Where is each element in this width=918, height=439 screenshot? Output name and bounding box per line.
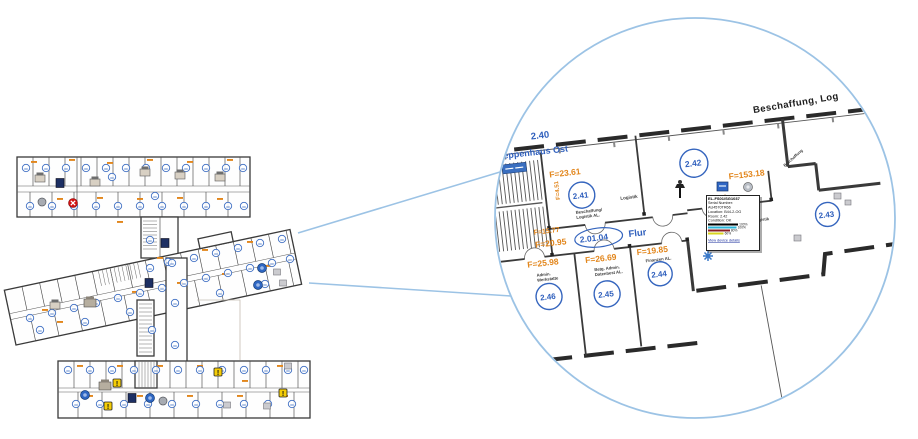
room-badge-icon[interactable] — [180, 279, 187, 286]
room-badge-icon[interactable] — [162, 164, 169, 171]
room-2.44-no[interactable]: 2.44 — [651, 269, 668, 280]
stairs-lower-left — [460, 267, 502, 342]
tooltip-status-bars: 100%100%80%60% — [708, 223, 760, 235]
room-badge-icon[interactable] — [146, 264, 153, 271]
room-badge-icon[interactable] — [22, 164, 29, 171]
gray-device-icon[interactable] — [744, 183, 753, 192]
room-badge-icon[interactable] — [72, 400, 79, 407]
navy-icon[interactable] — [145, 279, 153, 288]
room-badge-icon[interactable] — [222, 164, 229, 171]
stair-room-no: 2.40 — [530, 129, 550, 142]
area-label-mark — [227, 159, 233, 161]
area-label-mark — [42, 309, 48, 311]
room-badge-icon[interactable] — [286, 255, 293, 262]
corridor-name: Flur — [628, 227, 647, 240]
area-label-mark — [117, 221, 123, 223]
graybox-icon[interactable] — [285, 363, 292, 369]
printer-icon[interactable] — [35, 173, 45, 183]
device-tooltip: EL-FS01/SG1037 Serial Number: AU4570TR66… — [706, 195, 760, 251]
room-2.43-no[interactable]: 2.43 — [818, 210, 835, 221]
area-label-mark — [217, 198, 223, 200]
status-bar-row: 60% — [708, 232, 760, 235]
room-badge-icon[interactable] — [196, 366, 203, 373]
overview-bottom-wing — [58, 361, 310, 418]
area-label-mark — [202, 249, 208, 251]
room-badge-icon[interactable] — [81, 318, 88, 325]
svg-text:!: ! — [107, 404, 109, 411]
room-badge-icon[interactable] — [262, 366, 269, 373]
room-badge-icon[interactable] — [158, 202, 165, 209]
graybox-icon[interactable] — [224, 402, 231, 408]
partial-area-left: F=3.69 — [465, 261, 492, 273]
room-badge-icon[interactable] — [256, 239, 263, 246]
blueround-icon[interactable] — [81, 391, 90, 400]
area-label-mark — [57, 198, 63, 200]
room-badge-icon[interactable] — [300, 366, 307, 373]
room-badge-icon[interactable] — [216, 289, 223, 296]
room-badge-icon[interactable] — [148, 326, 155, 333]
room-badge-icon[interactable] — [152, 366, 159, 373]
area-label-mark — [157, 257, 163, 259]
room-badge-icon[interactable] — [190, 254, 197, 261]
grayround-icon[interactable] — [159, 397, 167, 405]
area-label-mark — [97, 197, 103, 199]
hvac-asterisk-icon[interactable] — [703, 251, 713, 261]
navy-icon[interactable] — [56, 179, 64, 188]
view-device-details-link[interactable]: View device details — [708, 238, 740, 243]
alert-icon[interactable]: ! — [104, 402, 112, 411]
area-label-mark — [117, 365, 123, 367]
room-badge-icon[interactable] — [246, 264, 253, 271]
room-badge-icon[interactable] — [114, 202, 121, 209]
room-badge-icon[interactable] — [136, 289, 143, 296]
room-badge-icon[interactable] — [146, 236, 153, 243]
lens-connector-bottom — [309, 283, 511, 296]
room-badge-icon[interactable] — [268, 259, 275, 266]
room-badge-icon[interactable] — [240, 400, 247, 407]
room-badge-icon[interactable] — [92, 202, 99, 209]
room-badge-icon[interactable] — [26, 314, 33, 321]
room-badge-icon[interactable] — [234, 244, 241, 251]
graybox-icon[interactable] — [280, 280, 287, 286]
room-badge-icon[interactable] — [224, 202, 231, 209]
room-badge-icon[interactable] — [168, 400, 175, 407]
svg-text:!: ! — [116, 381, 118, 388]
room-badge-icon[interactable] — [278, 235, 285, 242]
room-badge-icon[interactable] — [102, 164, 109, 171]
floorplan-overview: !!!! — [2, 157, 310, 418]
area-label-mark — [31, 161, 37, 163]
blueround-icon[interactable] — [254, 281, 263, 290]
room-badge-icon[interactable] — [130, 366, 137, 373]
room-badge-icon[interactable] — [202, 274, 209, 281]
area-label-mark — [187, 161, 193, 163]
redx-icon[interactable] — [69, 199, 78, 208]
room-badge-icon[interactable] — [192, 400, 199, 407]
room-badge-icon[interactable] — [158, 284, 165, 291]
printer-icon[interactable] — [90, 177, 100, 187]
room-2.41-no[interactable]: 2.41 — [572, 190, 589, 201]
room-badge-icon[interactable] — [288, 400, 295, 407]
alert-icon[interactable]: ! — [113, 379, 121, 388]
printer-icon[interactable] — [140, 167, 150, 177]
area-label-mark — [277, 365, 283, 367]
room-badge-icon[interactable] — [216, 400, 223, 407]
printer-icon[interactable] — [175, 170, 185, 180]
room-badge-icon[interactable] — [122, 164, 129, 171]
room-badge-icon[interactable] — [212, 249, 219, 256]
lens-connector-top — [298, 172, 500, 233]
room-badge-icon[interactable] — [126, 308, 133, 315]
printer-icon[interactable] — [215, 172, 225, 182]
svg-text:!: ! — [282, 391, 284, 398]
room-badge-icon[interactable] — [108, 173, 115, 180]
room-badge-icon[interactable] — [42, 164, 49, 171]
room-badge-icon[interactable] — [48, 309, 55, 316]
small-box-icon-1[interactable] — [834, 193, 841, 199]
graybox-icon[interactable] — [264, 403, 271, 409]
area-label-mark — [237, 395, 243, 397]
room-2.45-no[interactable]: 2.45 — [598, 289, 615, 300]
room-badge-icon[interactable] — [151, 192, 158, 199]
area-label-mark — [147, 159, 153, 161]
svg-text:!: ! — [217, 370, 219, 377]
room-badge-icon[interactable] — [96, 400, 103, 407]
room-badge-icon[interactable] — [114, 294, 121, 301]
room-badge-icon[interactable] — [62, 164, 69, 171]
room-badge-icon[interactable] — [64, 366, 71, 373]
graybox-icon[interactable] — [274, 269, 281, 275]
room-badge-icon[interactable] — [171, 299, 178, 306]
area-label-mark — [247, 241, 253, 243]
room-badge-icon[interactable] — [36, 326, 43, 333]
area-label-mark — [137, 395, 143, 397]
blueround-icon[interactable] — [146, 394, 155, 403]
small-box-icon-3[interactable] — [794, 235, 801, 241]
area-label-mark — [107, 162, 113, 164]
area-label-mark — [57, 321, 63, 323]
room-badge-icon[interactable] — [174, 366, 181, 373]
room-badge-icon[interactable] — [26, 202, 33, 209]
alert-icon[interactable]: ! — [214, 368, 222, 377]
small-box-icon-2[interactable] — [845, 200, 851, 205]
area-label-mark — [137, 198, 143, 200]
room-badge-icon[interactable] — [70, 304, 77, 311]
room-badge-icon[interactable] — [224, 269, 231, 276]
room-badge-icon[interactable] — [120, 400, 127, 407]
room-2.46-no[interactable]: 2.46 — [540, 292, 557, 303]
room-badge-icon[interactable] — [239, 164, 246, 171]
navy-icon[interactable] — [161, 239, 169, 248]
printer-icon[interactable] — [50, 300, 60, 310]
room-badge-icon[interactable] — [240, 366, 247, 373]
area-label-mark — [69, 159, 75, 161]
room-badge-icon[interactable] — [240, 202, 247, 209]
conference-device-icon[interactable] — [717, 182, 728, 191]
area-label-mark — [187, 395, 193, 397]
area-label-mark — [177, 197, 183, 199]
room-badge-icon[interactable] — [171, 341, 178, 348]
area-label-mark — [242, 380, 248, 382]
facility-floorplan-view: !!!! — [0, 0, 918, 439]
room-badge-icon[interactable] — [136, 202, 143, 209]
room-badge-icon[interactable] — [108, 366, 115, 373]
alert-icon[interactable]: ! — [279, 389, 287, 398]
blueround-icon[interactable] — [258, 264, 267, 273]
room-badge-icon[interactable] — [168, 259, 175, 266]
area-label-mark — [77, 365, 83, 367]
room-badge-icon[interactable] — [82, 164, 89, 171]
room-badge-icon[interactable] — [48, 202, 55, 209]
room-badge-icon[interactable] — [202, 164, 209, 171]
room-badge-icon[interactable] — [180, 202, 187, 209]
room-badge-icon[interactable] — [86, 366, 93, 373]
room-2.42-no[interactable]: 2.42 — [684, 157, 702, 169]
room-badge-icon[interactable] — [202, 202, 209, 209]
grayround-icon[interactable] — [38, 198, 46, 206]
navy-icon[interactable] — [128, 394, 136, 403]
